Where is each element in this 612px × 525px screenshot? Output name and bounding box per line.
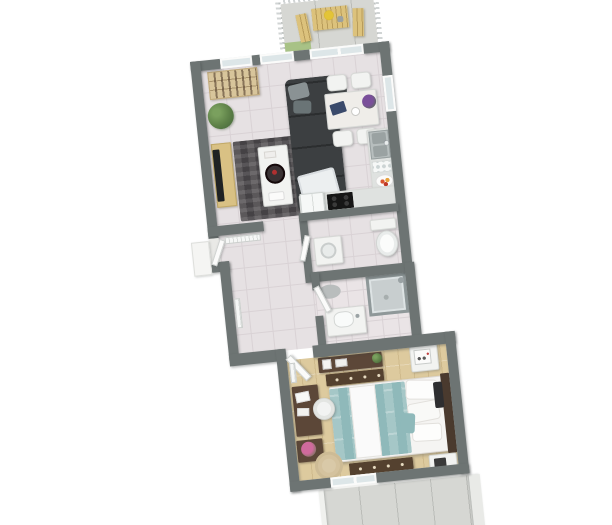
kitchen-glassware [371,159,392,173]
floor-plan-canvas: 3D rendered top-down floor plan of a one… [0,0,612,525]
desk-notepad [297,408,309,416]
bed-pillow-teal [401,413,416,433]
entry-landing [191,241,212,277]
coffee-table-plates [268,191,285,202]
bed-pillow-3 [412,422,443,442]
sofa-pillow-dark [293,101,311,114]
sideboard-decor [335,358,348,367]
balcony-bench-right [353,8,364,36]
dining-chair-top-right [350,71,372,89]
watering-can [337,16,344,23]
sink-basin-bottom [373,145,388,157]
wall-pillar-2 [293,49,310,61]
bookshelf [207,67,260,100]
coffee-table-decor [264,151,277,159]
sideboard-speaker [322,359,332,370]
radio-alarm [413,348,431,365]
dining-chair-top-left [326,74,348,92]
dining-chair-bottom-left [332,129,354,147]
